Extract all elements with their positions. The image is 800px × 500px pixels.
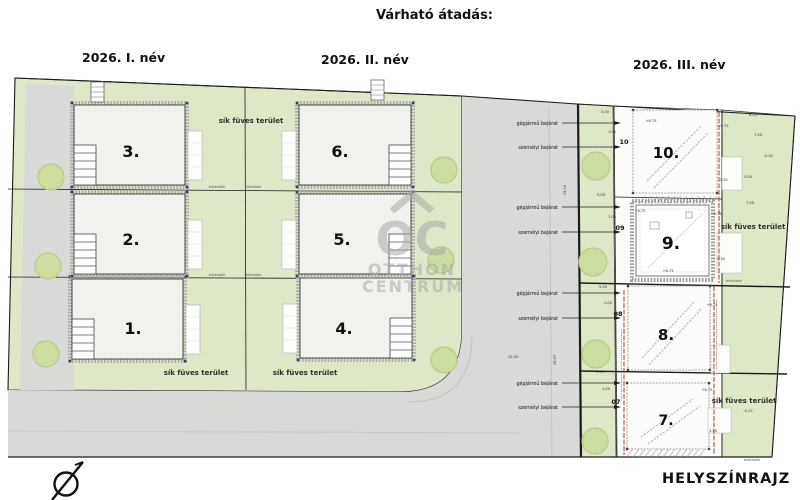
terrace — [283, 304, 297, 353]
tree-icon — [582, 152, 610, 180]
building-number-label: 1. — [124, 319, 141, 338]
dimension-label: 1.05 — [602, 387, 610, 391]
corner-marker — [626, 448, 628, 450]
plot-boundary-label: telekhatár — [245, 273, 262, 277]
driveway-entry-mark — [371, 80, 384, 100]
dimension-label: -0.15 — [763, 154, 772, 158]
grass-area-label: sík füves terület — [721, 223, 786, 231]
dimension-label: -3.20 — [718, 178, 728, 182]
north-arrow-icon — [52, 462, 83, 500]
terrace — [717, 233, 742, 273]
corner-marker — [716, 192, 718, 194]
tree-icon — [431, 157, 457, 183]
dimension-label: +6.75 — [710, 212, 721, 216]
corner-marker — [627, 285, 629, 287]
dimension-label: 5.00 — [597, 193, 606, 197]
dimension-label: +6.75 — [701, 388, 712, 392]
corner-marker — [186, 186, 189, 189]
dimension-label: 22.00 — [508, 355, 519, 359]
plot-boundary-label: telekhatár — [726, 279, 743, 283]
entrance-label: személyi bejárat — [518, 144, 558, 151]
corner-marker — [708, 382, 710, 384]
corner-marker — [412, 191, 415, 194]
dimension-label: 5.00 — [596, 370, 605, 374]
dimension-label: +6.75 — [717, 124, 728, 128]
corner-marker — [296, 191, 299, 194]
dimension-label: 15.00 — [563, 184, 567, 195]
entrance-label: személyi bejárat — [518, 315, 558, 322]
corner-marker — [626, 382, 628, 384]
dimension-label: 7.50 — [754, 133, 763, 137]
entrance-label: gépjármű bejárat — [517, 290, 559, 297]
stairs — [389, 145, 411, 185]
plot-number-marker: 07 — [611, 398, 620, 406]
corner-marker — [297, 359, 300, 362]
corner-marker — [71, 191, 74, 194]
building-number-label: 9. — [662, 234, 680, 254]
corner-marker — [296, 102, 299, 105]
entrance-label: gépjármű bejárat — [517, 204, 559, 211]
dimension-label: 5.00 — [599, 285, 608, 289]
dimension-label: -0.15 — [743, 409, 752, 413]
corner-marker — [186, 191, 189, 194]
corner-marker — [186, 275, 189, 278]
grass-area-label: sík füves terület — [219, 117, 284, 125]
grass-area-label: sík füves terület — [712, 397, 777, 405]
corner-marker — [709, 285, 711, 287]
building-number-label: 2. — [122, 230, 139, 249]
dimension-label: 7.00 — [746, 201, 755, 205]
corner-marker — [69, 360, 72, 363]
corner-marker — [412, 186, 415, 189]
dimension-label: 1.05 — [608, 130, 616, 134]
plot-boundary-label: telekhatár — [209, 185, 226, 189]
tree-icon — [579, 248, 607, 276]
corner-marker — [413, 359, 416, 362]
site-plan-drawing: sík füves terület sík füves terület sík … — [0, 0, 800, 500]
corner-marker — [71, 275, 74, 278]
tree-icon — [582, 428, 608, 454]
stairs — [74, 145, 96, 185]
drawing-type-label: HELYSZÍNRAJZ — [662, 471, 790, 487]
terrace — [722, 157, 742, 190]
stairs — [389, 234, 411, 274]
dimension-label: 15.07 — [553, 355, 557, 365]
grass-area-label: sík füves terület — [273, 369, 338, 377]
terrace — [188, 131, 202, 180]
dimension-label: 1.05 — [604, 301, 612, 305]
dimension-label: +6.75 — [706, 303, 717, 307]
tree-icon — [431, 347, 457, 373]
entrance-label: személyi bejárat — [518, 229, 558, 236]
corner-marker — [632, 109, 634, 111]
building-number-label: 8. — [658, 326, 674, 344]
corner-marker — [708, 448, 710, 450]
building-number-label: 4. — [335, 319, 352, 338]
stairs — [74, 234, 96, 274]
corner-marker — [296, 275, 299, 278]
corner-marker — [632, 192, 634, 194]
terrace — [188, 220, 202, 269]
plot-boundary-label: telekhatár — [245, 185, 262, 189]
dimension-label: 5.00 — [601, 110, 610, 114]
corner-marker — [71, 102, 74, 105]
plot-number-marker: 09 — [615, 224, 625, 232]
building-number-label: 5. — [333, 230, 350, 249]
entrance-label: gépjármű bejárat — [517, 380, 559, 387]
dimension-label: 2.30 — [717, 257, 726, 261]
tree-icon — [33, 341, 59, 367]
dimension-label: 3.20 — [709, 429, 718, 433]
corner-marker — [296, 186, 299, 189]
plot-boundary-label: telekhatár — [209, 273, 226, 277]
terrace — [282, 220, 296, 269]
dimension-label: +6.75 — [645, 119, 656, 123]
building-number-label: 7. — [658, 413, 673, 429]
dimension-label: 1.05 — [608, 215, 616, 219]
entrance-label: személyi bejárat — [518, 404, 558, 411]
corner-marker — [412, 275, 415, 278]
corner-marker — [627, 369, 629, 371]
tree-icon — [35, 253, 61, 279]
corner-marker — [412, 102, 415, 105]
plot-boundary-label: telekhatár — [744, 458, 761, 462]
dimension-label: +6.75 — [662, 269, 673, 273]
corner-marker — [184, 360, 187, 363]
corner-marker — [71, 186, 74, 189]
tree-icon — [582, 340, 610, 368]
terrace — [282, 131, 296, 180]
corner-marker — [186, 102, 189, 105]
site-plan-page: Várható átadás: 2026. I. név 2026. II. n… — [0, 0, 800, 500]
grass-area-label: sík füves terület — [164, 369, 229, 377]
building-4-footprint — [283, 275, 415, 362]
dimension-label: +6.75 — [634, 209, 645, 213]
stairs — [390, 318, 412, 358]
plot-number-marker: 10 — [619, 138, 629, 146]
building-number-label: 6. — [331, 142, 348, 161]
tree-icon — [428, 247, 454, 273]
dimension-label: 8.25 — [749, 113, 757, 117]
building-number-label: 3. — [122, 142, 139, 161]
terrace — [186, 305, 200, 354]
tree-icon — [38, 164, 64, 190]
corner-marker — [716, 109, 718, 111]
stairs — [72, 319, 94, 359]
entrance-label: gépjármű bejárat — [517, 120, 559, 127]
driveway-entry-mark — [91, 82, 104, 102]
building-number-label: 10. — [653, 144, 680, 162]
dimension-label: 3.00 — [744, 175, 753, 179]
